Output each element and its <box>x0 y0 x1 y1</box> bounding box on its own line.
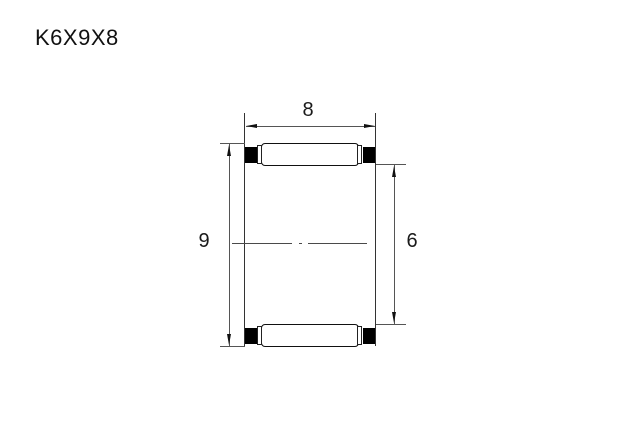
width-arrow-right-icon <box>364 124 375 128</box>
cage-lip-top-right <box>357 145 362 164</box>
bore-dim-line <box>394 165 395 324</box>
outer-ext-line-bottom <box>220 346 245 347</box>
cage-lip-top-left <box>257 145 262 164</box>
outer-arrow-up-icon <box>227 145 231 156</box>
centerline-dot <box>299 243 302 244</box>
cage-ring-bottom-left <box>245 328 257 344</box>
cage-ring-bottom-right <box>363 328 375 344</box>
width-dim-label: 8 <box>298 99 318 121</box>
needle-roller-bottom <box>261 324 359 347</box>
outer-dim-line <box>229 144 230 346</box>
cage-lip-bottom-right <box>357 326 362 345</box>
needle-roller-top <box>261 143 359 166</box>
centerline-dash-right <box>308 243 367 244</box>
cage-ring-top-left <box>245 147 257 163</box>
drawing-canvas: K6X9X8 8 9 6 <box>0 0 640 440</box>
outer-dim-label: 9 <box>194 230 214 252</box>
cage-right-face-line <box>375 113 376 346</box>
bearing-drawing: 8 9 6 <box>0 0 640 440</box>
cage-ring-top-right <box>363 147 375 163</box>
width-arrow-left-icon <box>246 124 257 128</box>
bore-arrow-down-icon <box>392 312 396 323</box>
bore-dim-label: 6 <box>402 230 422 252</box>
bore-arrow-up-icon <box>392 166 396 177</box>
bore-ext-line-bottom <box>376 324 406 325</box>
cage-lip-bottom-left <box>257 326 262 345</box>
outer-arrow-down-icon <box>227 334 231 345</box>
outer-ext-line-top <box>220 143 245 144</box>
width-dim-line <box>246 126 375 127</box>
bore-ext-line-top <box>376 164 406 165</box>
centerline-dash-left <box>232 243 292 244</box>
